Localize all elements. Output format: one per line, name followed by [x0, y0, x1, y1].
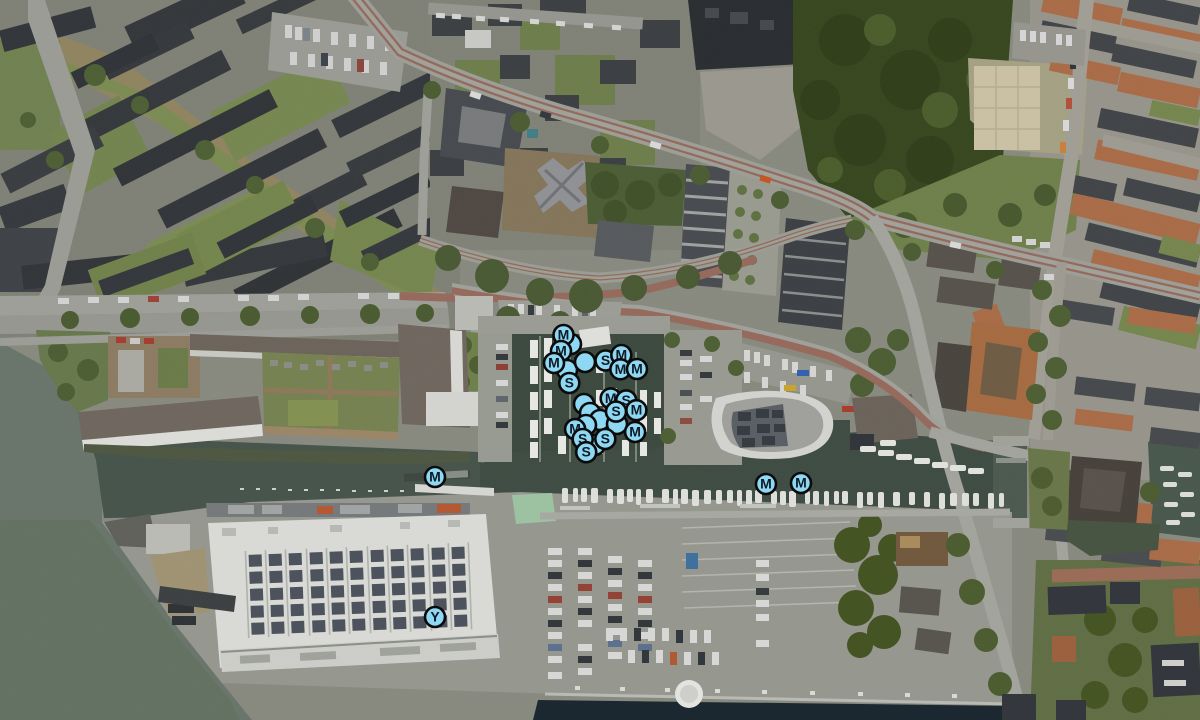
svg-text:M: M	[795, 475, 807, 491]
svg-text:S: S	[601, 352, 610, 368]
svg-text:Y: Y	[430, 609, 440, 625]
svg-text:M: M	[615, 361, 627, 377]
svg-text:S: S	[582, 444, 591, 460]
svg-text:S: S	[565, 375, 574, 391]
svg-text:S: S	[611, 403, 620, 419]
svg-text:M: M	[631, 361, 643, 377]
svg-text:M: M	[631, 402, 643, 418]
svg-text:M: M	[629, 424, 641, 440]
svg-text:S: S	[601, 431, 610, 447]
svg-text:M: M	[429, 469, 441, 485]
svg-text:M: M	[548, 355, 560, 371]
svg-text:M: M	[760, 476, 772, 492]
